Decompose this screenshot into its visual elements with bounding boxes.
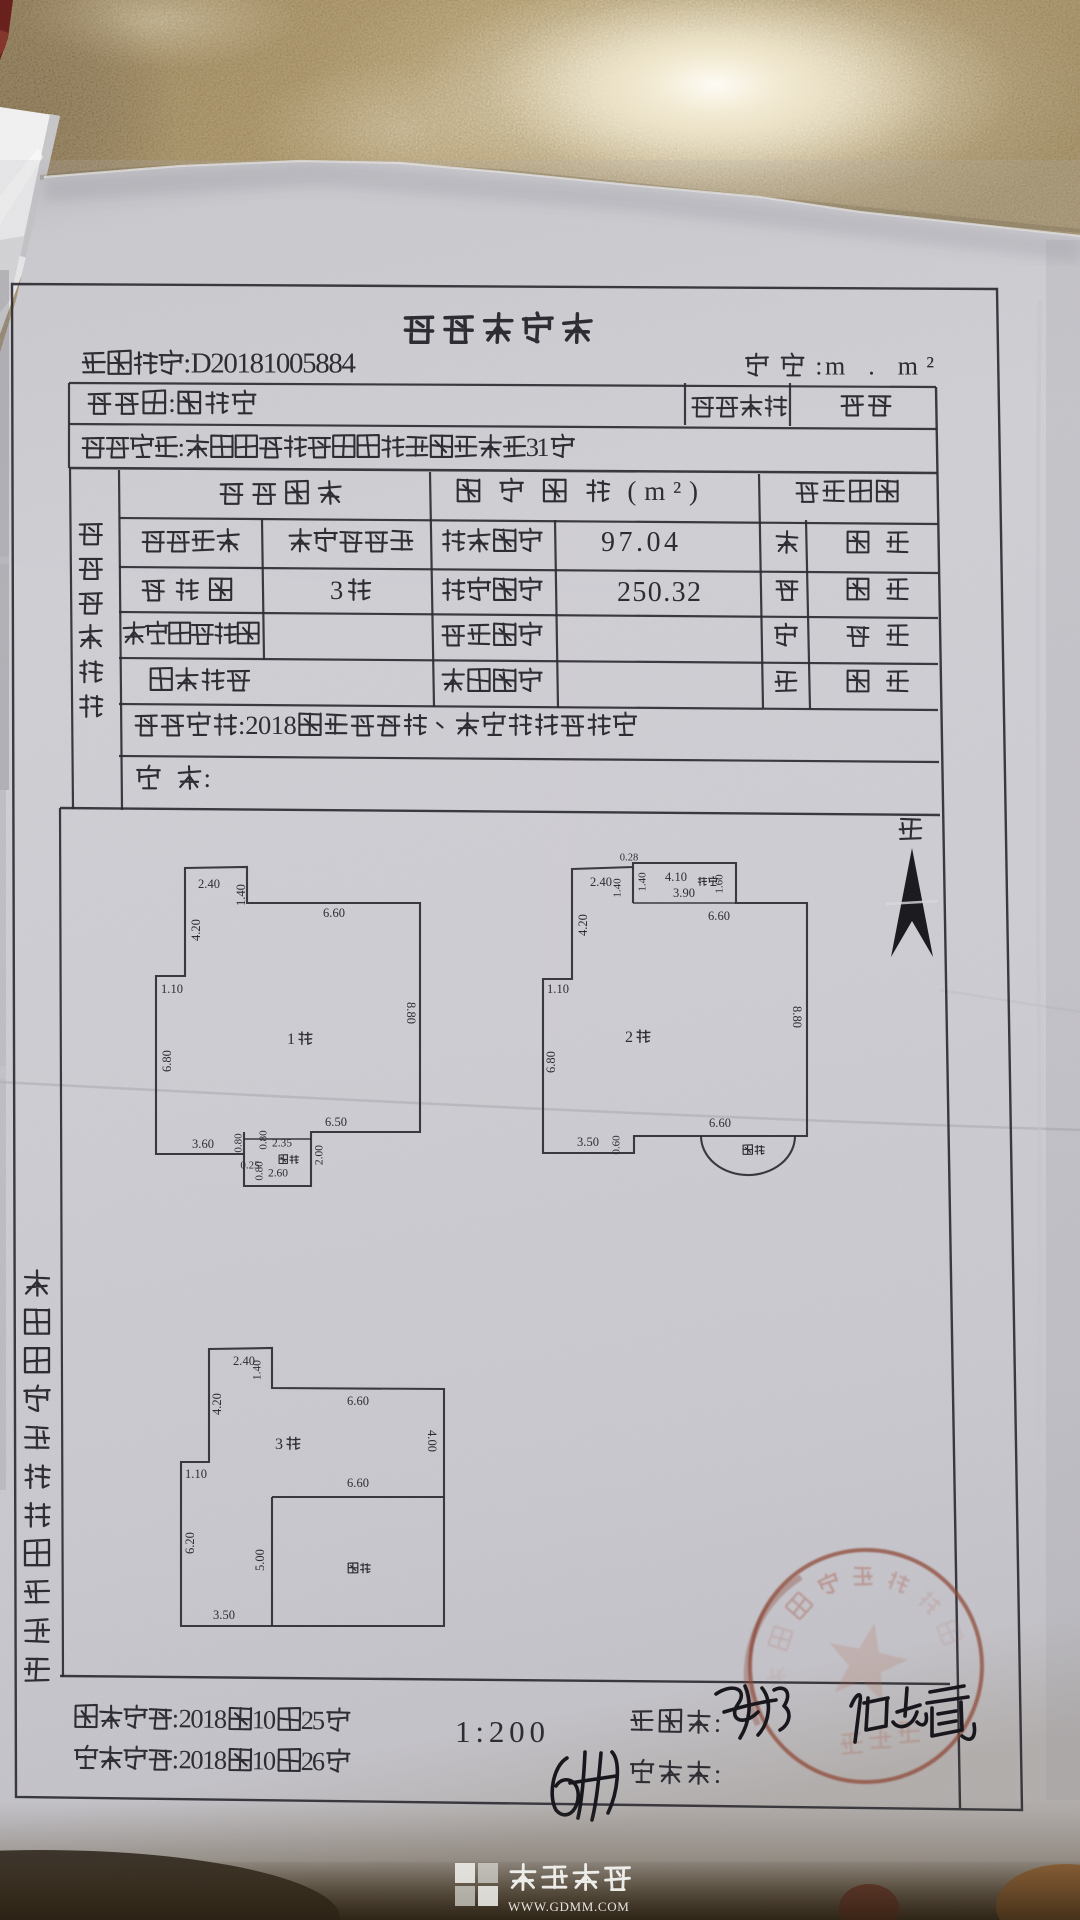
svg-text:1.10: 1.10 (161, 982, 183, 996)
svg-text:26: 26 (301, 1746, 326, 1776)
svg-text:4.10: 4.10 (665, 870, 687, 884)
svg-text:3: 3 (330, 575, 343, 605)
svg-text:250.32: 250.32 (617, 577, 701, 608)
svg-text::: : (714, 1759, 722, 1789)
svg-text:10: 10 (252, 1745, 277, 1775)
svg-text:6.60: 6.60 (709, 1116, 731, 1130)
svg-text:6.60: 6.60 (708, 909, 730, 923)
svg-text:2.40: 2.40 (198, 877, 220, 891)
svg-text:2.40: 2.40 (590, 875, 612, 889)
svg-text:4.20: 4.20 (576, 914, 590, 936)
svg-text:1.40: 1.40 (612, 878, 624, 898)
svg-text:WWW.GDMM.COM: WWW.GDMM.COM (508, 1899, 630, 1914)
svg-text:3: 3 (275, 1436, 283, 1453)
svg-text:0.80: 0.80 (254, 1161, 266, 1181)
svg-text:0.28: 0.28 (620, 852, 638, 863)
svg-text::: : (178, 432, 185, 462)
svg-text:6.80: 6.80 (160, 1050, 174, 1072)
svg-text:1.10: 1.10 (185, 1467, 207, 1481)
svg-text::: : (168, 388, 176, 418)
svg-text:2: 2 (625, 1029, 633, 1046)
svg-text:4.00: 4.00 (425, 1430, 439, 1452)
svg-text:1.60: 1.60 (714, 874, 726, 894)
svg-text:31: 31 (526, 432, 550, 462)
svg-text::: : (204, 763, 212, 793)
svg-text:D20181005884: D20181005884 (191, 348, 356, 380)
svg-text:1:200: 1:200 (455, 1714, 545, 1749)
svg-text:10: 10 (252, 1704, 277, 1734)
svg-text:3.60: 3.60 (192, 1137, 214, 1151)
svg-text:6.60: 6.60 (347, 1476, 369, 1490)
svg-text:97.04: 97.04 (601, 527, 678, 558)
svg-text:4.20: 4.20 (210, 1393, 224, 1415)
svg-text:8.80: 8.80 (790, 1006, 804, 1028)
svg-text:1.40: 1.40 (234, 884, 248, 906)
svg-text:6.60: 6.60 (347, 1394, 369, 1408)
svg-text:2.00: 2.00 (314, 1145, 326, 1165)
svg-text:3.50: 3.50 (577, 1135, 599, 1149)
svg-text:3.90: 3.90 (673, 886, 695, 900)
svg-text:1.40: 1.40 (637, 872, 649, 892)
svg-text:3.50: 3.50 (213, 1608, 235, 1622)
svg-text:1: 1 (287, 1031, 295, 1048)
svg-text:8.80: 8.80 (404, 1002, 418, 1024)
svg-text:0.80: 0.80 (258, 1130, 270, 1150)
svg-text:6.50: 6.50 (325, 1115, 347, 1129)
svg-text::: : (714, 1708, 722, 1738)
svg-text:25: 25 (301, 1705, 326, 1735)
svg-text:2018: 2018 (178, 1703, 227, 1734)
svg-text:2018: 2018 (245, 710, 297, 740)
svg-text:1.40: 1.40 (252, 1360, 264, 1380)
svg-text:4.20: 4.20 (189, 919, 203, 941)
svg-text:6.20: 6.20 (183, 1532, 197, 1554)
svg-text:1.10: 1.10 (547, 982, 569, 996)
svg-text:6.60: 6.60 (323, 906, 345, 920)
svg-text:5.00: 5.00 (253, 1549, 267, 1571)
svg-text:6.80: 6.80 (544, 1051, 558, 1073)
svg-text:2.60: 2.60 (268, 1168, 288, 1180)
svg-text::: : (815, 351, 822, 380)
svg-text:0.80: 0.80 (233, 1133, 245, 1153)
svg-text:2.35: 2.35 (272, 1138, 292, 1150)
svg-text:2018: 2018 (178, 1744, 227, 1775)
svg-text:0.60: 0.60 (611, 1135, 623, 1155)
